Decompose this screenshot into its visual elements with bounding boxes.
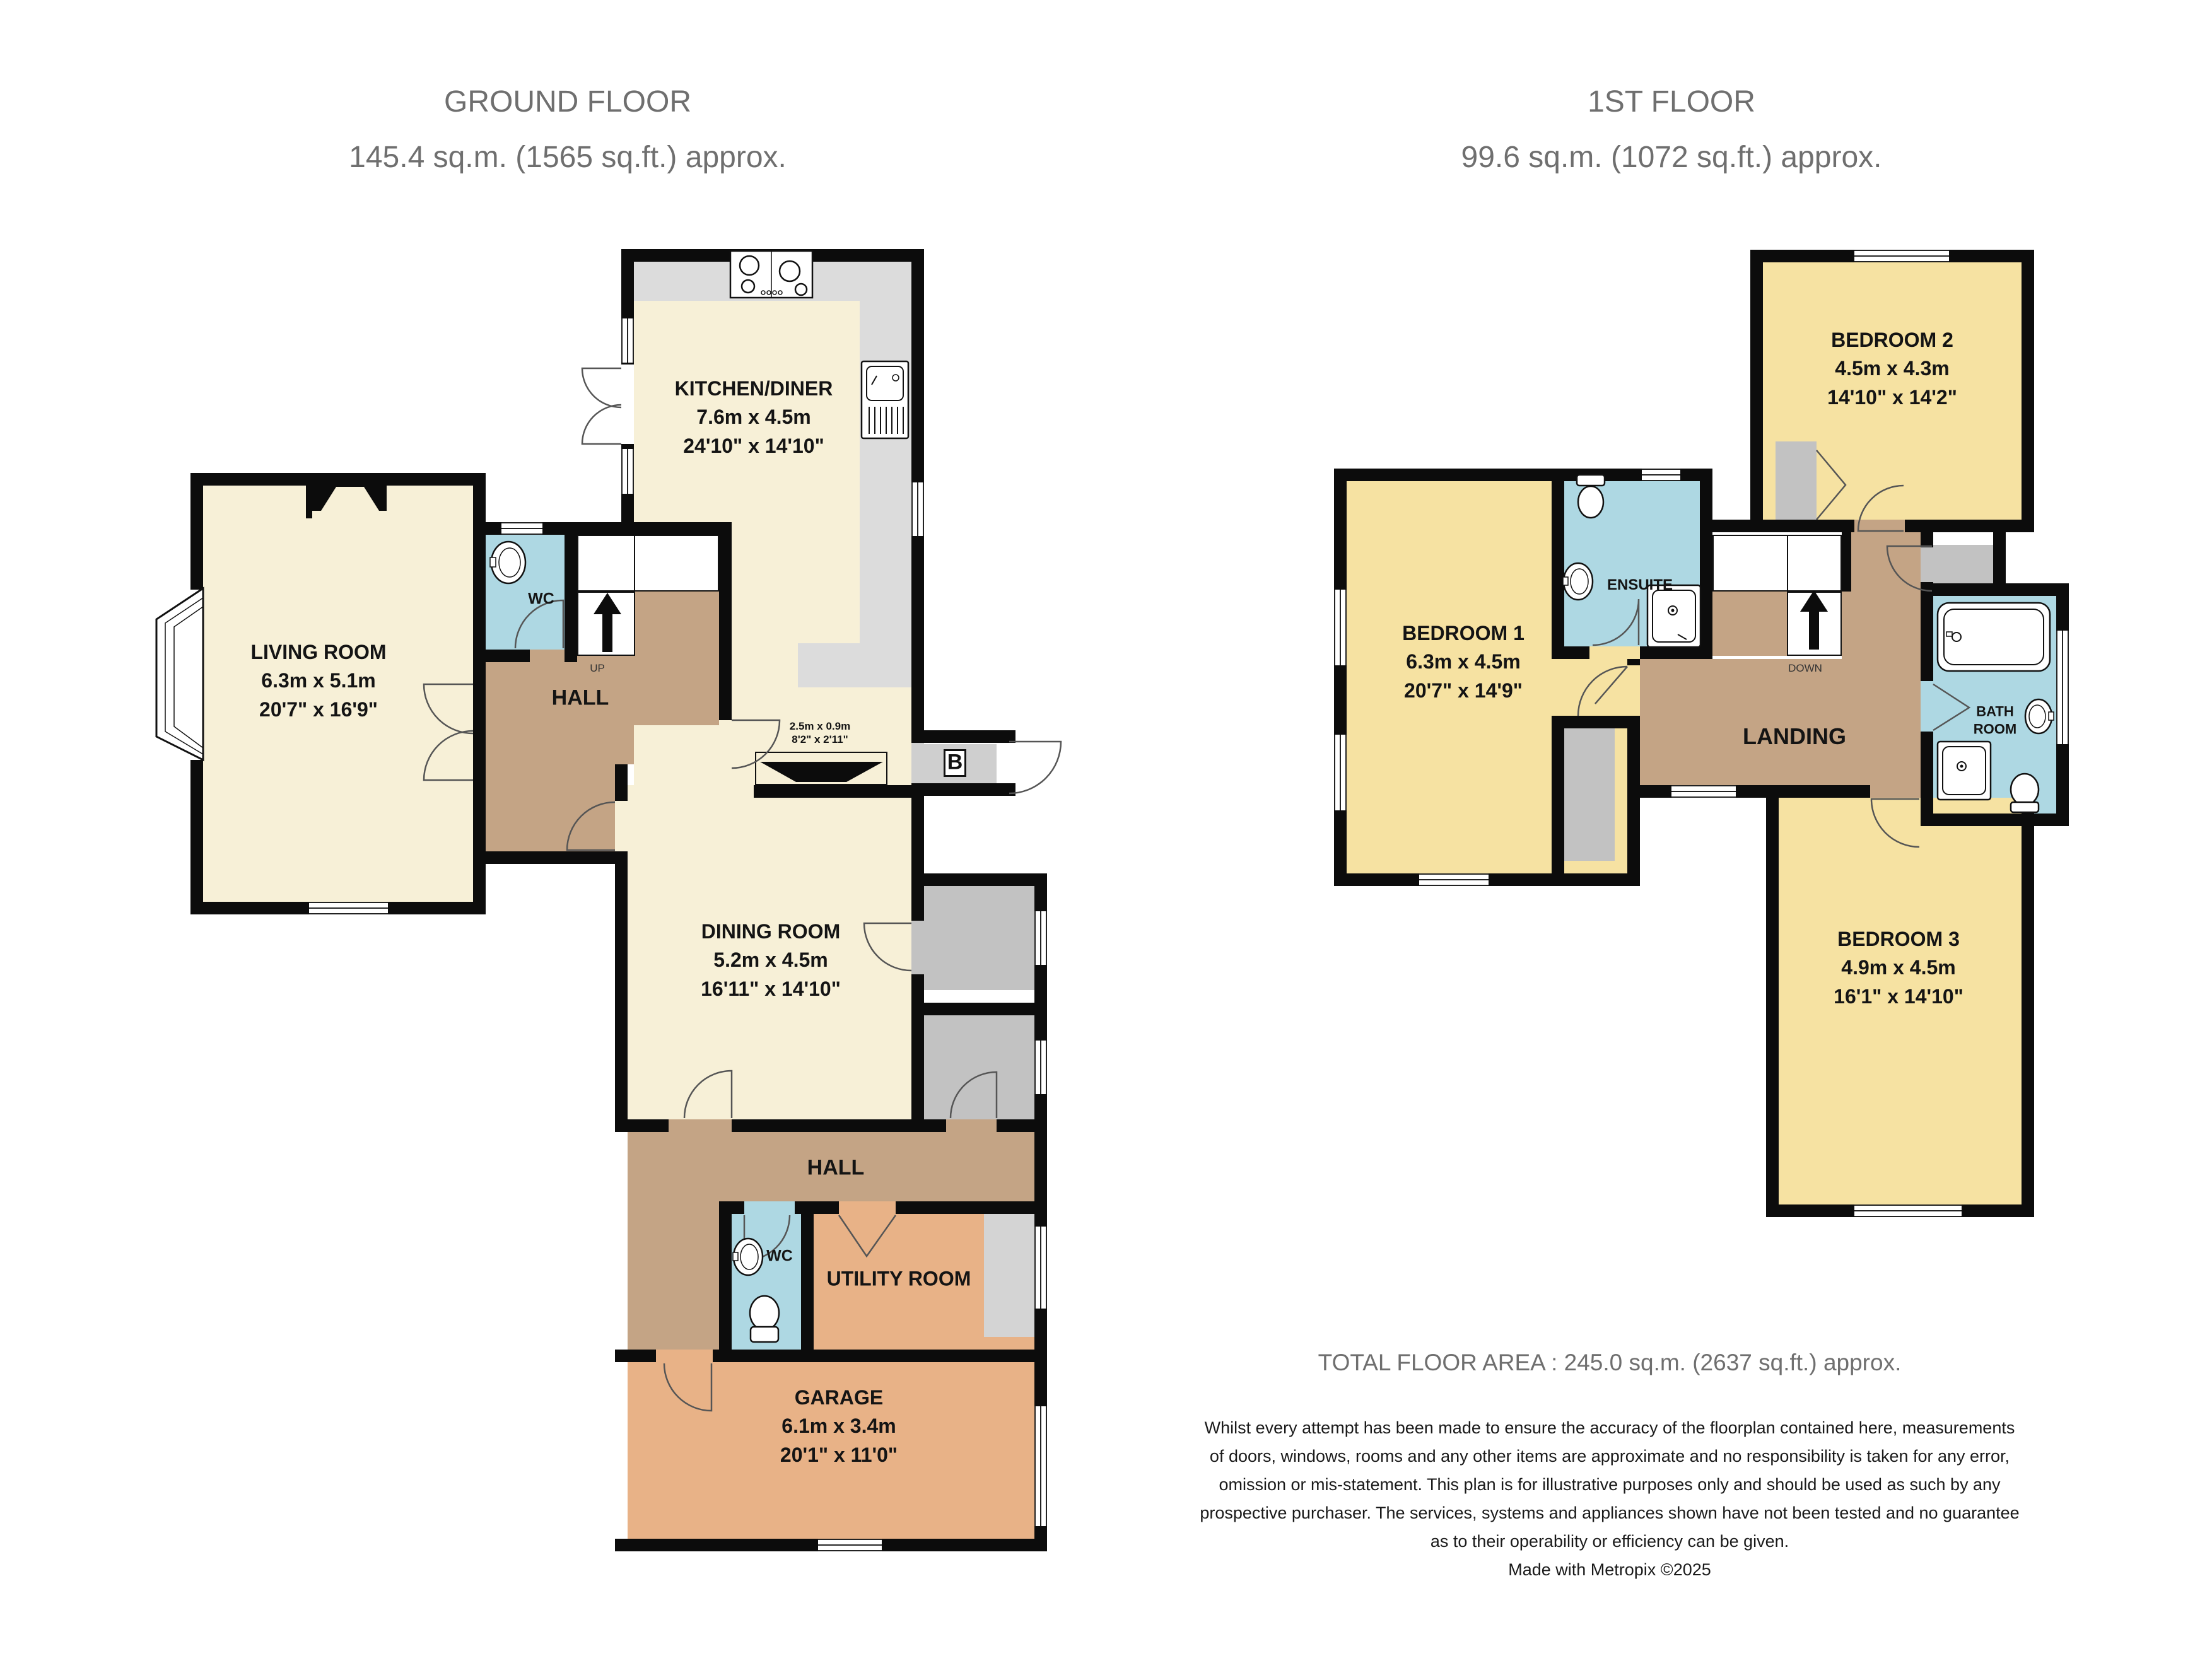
fireplace-dims-imperial: 8'2" x 2'11": [790, 733, 850, 746]
bay-window: [156, 588, 203, 760]
disclaimer: Whilst every attempt has been made to en…: [1162, 1414, 2057, 1584]
chimney-recess: [312, 487, 388, 518]
fireplace-label: 2.5m x 0.9m8'2" x 2'11": [790, 720, 850, 747]
basin-icon: [1563, 563, 1593, 600]
disclaimer-line: of doors, windows, rooms and any other i…: [1162, 1442, 2057, 1471]
landing-label: LANDING: [1743, 723, 1846, 750]
door-arcs-first: [1578, 450, 1969, 847]
room-name: KITCHEN/DINER: [675, 375, 833, 403]
disclaimer-line: prospective purchaser. The services, sys…: [1162, 1499, 2057, 1527]
garage-label: GARAGE 6.1m x 3.4m 20'1" x 11'0": [780, 1384, 898, 1469]
boiler-box: B: [944, 749, 966, 777]
total-floor-area: TOTAL FLOOR AREA : 245.0 sq.m. (2637 sq.…: [1168, 1350, 2051, 1376]
room-name: LIVING ROOM: [250, 638, 386, 667]
toilet-icon: [2011, 774, 2039, 812]
room-name: GARAGE: [780, 1384, 898, 1412]
kitchen-label: KITCHEN/DINER 7.6m x 4.5m 24'10" x 14'10…: [675, 375, 833, 460]
bedroom1-label: BEDROOM 1 6.3m x 4.5m 20'7" x 14'9": [1402, 619, 1524, 705]
hall-lower-label: HALL: [807, 1156, 865, 1181]
shower-icon: [1938, 742, 1991, 800]
toilet-icon: [750, 1296, 779, 1342]
room-dims-metric: 4.5m x 4.3m: [1827, 354, 1957, 383]
room-name: DINING ROOM: [701, 918, 841, 946]
toilet-icon: [1577, 475, 1605, 518]
room-dims-imperial: 20'7" x 14'9": [1402, 677, 1524, 705]
kitchen-sink-icon: [862, 361, 908, 438]
fireplace-icon: [760, 762, 883, 782]
room-dims-imperial: 24'10" x 14'10": [675, 432, 833, 460]
stair-arrow-up-icon: [594, 593, 621, 652]
room-dims-metric: 5.2m x 4.5m: [701, 946, 841, 974]
basin-icon: [733, 1239, 763, 1275]
room-dims-imperial: 20'1" x 11'0": [780, 1441, 898, 1469]
room-dims-imperial: 14'10" x 14'2": [1827, 383, 1957, 412]
hall-upper-label: HALL: [552, 686, 609, 711]
basin-icon: [2025, 699, 2054, 733]
utility-label: UTILITY ROOM: [827, 1268, 971, 1291]
room-name: BEDROOM 2: [1827, 326, 1957, 354]
room-name: BEDROOM 1: [1402, 619, 1524, 648]
living-room-label: LIVING ROOM 6.3m x 5.1m 20'7" x 16'9": [250, 638, 386, 724]
room-dims-metric: 6.1m x 3.4m: [780, 1412, 898, 1440]
floorplan-page: { "titles": { "ground": "GROUND FLOOR\n1…: [0, 0, 2212, 1668]
shower-icon: [1647, 585, 1700, 647]
stairs-up-label: UP: [590, 662, 605, 675]
dining-room-label: DINING ROOM 5.2m x 4.5m 16'11" x 14'10": [701, 918, 841, 1003]
room-dims-imperial: 20'7" x 16'9": [250, 696, 386, 724]
bedroom3-label: BEDROOM 3 4.9m x 4.5m 16'1" x 14'10": [1834, 925, 1963, 1011]
wc-lower-label: WC: [766, 1247, 793, 1266]
bathroom-label: BATH ROOM: [1974, 703, 2016, 738]
stove-icon: [730, 251, 812, 298]
bathtub-icon: [1938, 603, 2050, 671]
room-dims-metric: 6.3m x 4.5m: [1402, 648, 1524, 676]
credit-line: Made with Metropix ©2025: [1162, 1556, 2057, 1584]
ensuite-label: ENSUITE: [1607, 576, 1673, 594]
fireplace-dims-metric: 2.5m x 0.9m: [790, 720, 850, 733]
basin-icon: [490, 542, 525, 583]
room-dims-imperial: 16'11" x 14'10": [701, 975, 841, 1003]
room-dims-imperial: 16'1" x 14'10": [1834, 983, 1963, 1011]
stair-arrow-down-icon: [1800, 590, 1828, 650]
room-dims-metric: 4.9m x 4.5m: [1834, 954, 1963, 982]
disclaimer-line: Whilst every attempt has been made to en…: [1162, 1414, 2057, 1442]
room-dims-metric: 7.6m x 4.5m: [675, 403, 833, 431]
wc-upper-label: WC: [528, 590, 554, 609]
disclaimer-line: omission or mis-statement. This plan is …: [1162, 1471, 2057, 1499]
bedroom2-label: BEDROOM 2 4.5m x 4.3m 14'10" x 14'2": [1827, 326, 1957, 412]
room-name: BEDROOM 3: [1834, 925, 1963, 954]
room-dims-metric: 6.3m x 5.1m: [250, 667, 386, 695]
boiler-label: B: [947, 750, 963, 775]
stairs-down-label: DOWN: [1788, 662, 1822, 675]
disclaimer-line: as to their operability or efficiency ca…: [1162, 1527, 2057, 1556]
